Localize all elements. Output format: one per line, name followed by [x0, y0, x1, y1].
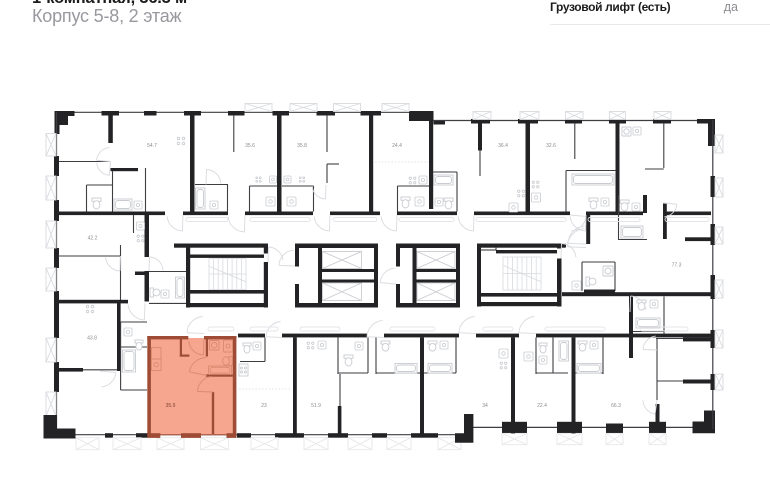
svg-text:54.7: 54.7	[147, 143, 157, 149]
svg-text:66.3: 66.3	[611, 403, 621, 409]
svg-text:43.8: 43.8	[87, 336, 97, 342]
svg-text:77.3: 77.3	[672, 263, 682, 269]
svg-text:22.4: 22.4	[537, 403, 547, 409]
svg-text:35.9: 35.9	[166, 403, 176, 409]
svg-text:34: 34	[482, 403, 488, 409]
svg-text:23: 23	[261, 403, 267, 409]
svg-text:51.9: 51.9	[311, 403, 321, 409]
svg-text:24.4: 24.4	[392, 143, 402, 149]
svg-text:35.8: 35.8	[297, 143, 307, 149]
svg-text:42.2: 42.2	[88, 236, 98, 242]
svg-text:35.6: 35.6	[245, 143, 255, 149]
svg-text:36.4: 36.4	[498, 143, 508, 149]
svg-text:32.6: 32.6	[546, 143, 556, 149]
